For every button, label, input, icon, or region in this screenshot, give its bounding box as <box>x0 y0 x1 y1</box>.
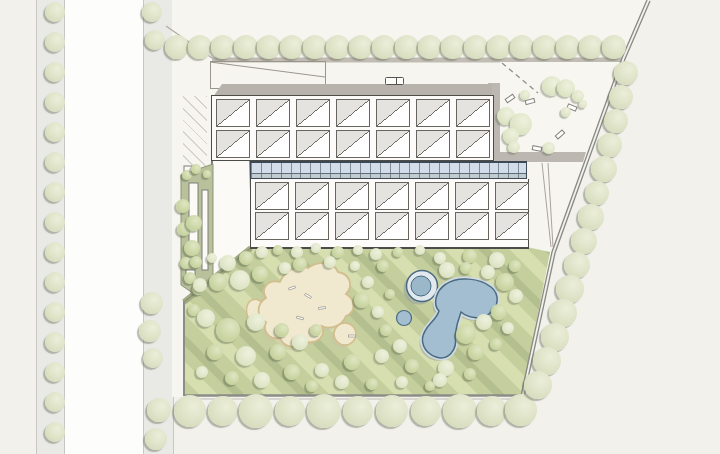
lawn-tree-icon <box>193 278 207 292</box>
tree-row-north-icon <box>372 35 396 59</box>
tree-row-north-icon <box>326 35 350 59</box>
lawn-tree-icon <box>509 289 523 303</box>
tree-row-east-boundary-icon <box>578 204 604 230</box>
lawn-tree-icon <box>306 380 318 392</box>
skylight-cell <box>295 182 329 210</box>
tree-row-east-boundary-icon <box>609 85 633 109</box>
skylight-cell <box>256 99 290 127</box>
skylight-cell <box>455 212 489 240</box>
glazing-row-upper <box>251 163 526 174</box>
pond-small-circle <box>397 311 412 326</box>
lawn-tree-icon <box>247 313 265 331</box>
lawn-tree-icon <box>273 245 283 255</box>
street-trees-inner-icon <box>143 348 163 368</box>
lawn-tree-icon <box>375 349 389 363</box>
skylight-cell <box>415 212 449 240</box>
skylight-block-north <box>211 95 494 161</box>
tree-row-north-icon <box>303 35 327 59</box>
lawn-tree-icon <box>275 323 289 337</box>
lawn-tree-icon <box>377 260 389 272</box>
skylight-cell <box>495 212 529 240</box>
skylight-cell <box>335 182 369 210</box>
tree-row-north-icon <box>395 35 419 59</box>
tree-row-north-icon <box>234 35 258 59</box>
lawn-tree-icon <box>433 373 447 387</box>
lawn-tree-icon <box>207 253 217 263</box>
skylight-cell <box>416 130 450 158</box>
courtyard-tree-icon <box>579 100 587 108</box>
skylight-cell <box>216 99 250 127</box>
lawn-tree-icon <box>344 354 360 370</box>
skylight-cell <box>295 212 329 240</box>
tree-row-east-boundary-icon <box>524 371 552 399</box>
tree-row-north-icon <box>533 35 557 59</box>
street-trees-inner-icon <box>142 2 162 22</box>
street-trees-outer-icon <box>45 152 65 172</box>
lawn-tree-icon <box>196 366 208 378</box>
skylight-cell <box>336 99 370 127</box>
tree-row-north-icon <box>211 35 235 59</box>
lawn-tree-icon <box>490 338 502 350</box>
street-trees-inner-icon <box>141 292 163 314</box>
lawn-tree-icon <box>464 368 476 380</box>
lawn-tree-icon <box>292 334 308 350</box>
courtyard-tree-icon <box>561 107 571 117</box>
lawn-tree-icon <box>197 309 215 327</box>
skylight-cell <box>256 130 290 158</box>
lawn-tree-icon <box>481 265 495 279</box>
lawn-tree-icon <box>252 266 268 282</box>
tree-row-north-icon <box>602 35 626 59</box>
lawn-tree-icon <box>324 256 336 268</box>
planting-strip-tree-icon <box>182 170 192 180</box>
skylight-cell <box>455 182 489 210</box>
skylight-cell <box>335 212 369 240</box>
street-trees-outer-icon <box>45 122 65 142</box>
tree-row-north-icon <box>188 35 212 59</box>
lawn-tree-icon <box>439 262 455 278</box>
skylight-cell <box>415 182 449 210</box>
street-trees-outer-icon <box>45 62 65 82</box>
lawn-tree-icon <box>310 324 322 336</box>
lawn-tree-icon <box>209 273 227 291</box>
courtyard-tree-icon <box>543 142 555 154</box>
tree-row-east-boundary-icon <box>571 228 597 254</box>
lawn-tree-icon <box>372 306 384 318</box>
lawn-tree-icon <box>354 292 370 308</box>
street-trees-outer-icon <box>45 2 65 22</box>
strip-slot <box>189 183 198 243</box>
tree-row-south-icon <box>239 394 273 428</box>
street-trees-inner-icon <box>145 30 165 50</box>
lawn-tree-icon <box>456 324 476 344</box>
tree-row-south-icon <box>443 394 477 428</box>
street-trees-outer-icon <box>45 182 65 202</box>
skylight-cell <box>296 99 330 127</box>
skylight-cell <box>456 99 490 127</box>
lawn-tree-icon <box>254 372 270 388</box>
tree-row-north-icon <box>165 35 189 59</box>
lawn-tree-icon <box>279 262 291 274</box>
skylight-cell <box>216 130 250 158</box>
lawn-tree-icon <box>468 344 484 360</box>
lawn-tree-icon <box>370 248 382 260</box>
tree-row-south-icon <box>343 396 373 426</box>
street-trees-outer-icon <box>45 212 65 232</box>
lawn-tree-icon <box>425 381 435 391</box>
lawn-tree-icon <box>366 378 378 390</box>
tree-row-east-boundary-icon <box>604 109 628 133</box>
skylight-cell <box>495 182 529 210</box>
lawn-tree-icon <box>335 375 349 389</box>
lawn-tree-icon <box>405 359 419 373</box>
tree-row-north-icon <box>487 35 511 59</box>
skylight-cell <box>456 130 490 158</box>
hatch-area <box>183 96 207 166</box>
glazing-row-lower <box>251 174 526 178</box>
glazed-atrium-band <box>250 161 527 179</box>
tree-row-south-icon <box>411 396 441 426</box>
tree-row-north-icon <box>441 35 465 59</box>
skylight-cell <box>375 182 409 210</box>
lawn-tree-icon <box>396 376 408 388</box>
tree-row-east-boundary-icon <box>585 181 609 205</box>
street-trees-outer-icon <box>45 362 65 382</box>
skylight-cell <box>296 130 330 158</box>
street-trees-outer-icon <box>45 92 65 112</box>
tree-row-east-boundary-icon <box>614 61 638 85</box>
planting-strip-tree-icon <box>176 199 190 213</box>
tree-row-north-icon <box>464 35 488 59</box>
courtyard-tree-icon <box>508 141 520 153</box>
tree-row-south-icon <box>208 396 238 426</box>
street-trees-outer-icon <box>45 392 65 412</box>
tree-row-south-icon <box>174 395 206 427</box>
street-trees-outer-icon <box>45 422 65 442</box>
site-plan-canvas <box>0 0 720 454</box>
street-trees-outer-icon <box>45 32 65 52</box>
lawn-tree-icon <box>353 245 363 255</box>
lawn-tree-icon <box>239 251 253 265</box>
tree-row-south-icon <box>275 396 305 426</box>
lawn-tree-icon <box>270 344 286 360</box>
skylight-cell <box>416 99 450 127</box>
lawn-tree-icon <box>491 304 507 320</box>
street-trees-outer-icon <box>45 302 65 322</box>
planting-strip-tree-icon <box>186 215 202 231</box>
street-trees-inner-icon <box>139 320 161 342</box>
lawn-tree-icon <box>385 289 395 299</box>
courtyard-tree-icon <box>520 90 530 100</box>
tree-row-north-icon <box>579 35 603 59</box>
tree-row-south-icon <box>307 394 341 428</box>
lawn-tree-icon <box>509 260 521 272</box>
street-trees-outer-icon <box>45 272 65 292</box>
skylight-cell <box>255 182 289 210</box>
skylight-cell <box>375 212 409 240</box>
street-trees-outer-icon <box>45 332 65 352</box>
street-trees-outer-icon <box>45 242 65 262</box>
lawn-tree-icon <box>460 262 472 274</box>
tree-row-north-icon <box>510 35 534 59</box>
lawn-tree-icon <box>362 276 374 288</box>
lawn-tree-icon <box>496 273 514 291</box>
lawn-tree-icon <box>463 249 477 263</box>
lawn-tree-icon <box>332 246 344 258</box>
skylight-cell <box>255 212 289 240</box>
skylight-cell <box>376 130 410 158</box>
lawn-tree-icon <box>230 270 250 290</box>
lawn-tree-icon <box>380 324 392 336</box>
tree-row-south-icon <box>477 396 507 426</box>
tree-row-north-icon <box>418 35 442 59</box>
lawn-tree-icon <box>415 245 425 255</box>
lawn-tree-icon <box>393 247 403 257</box>
street-trees-inner-icon <box>147 398 171 422</box>
tree-row-north-icon <box>349 35 373 59</box>
planting-strip-tree-icon <box>203 170 211 178</box>
lawn-tree-icon <box>207 344 223 360</box>
lawn-tree-icon <box>216 318 240 342</box>
roof-vent <box>385 77 404 85</box>
lawn-tree-icon <box>284 364 300 380</box>
planting-strip-tree-icon <box>184 240 200 256</box>
tree-row-south-icon <box>505 394 537 426</box>
lawn-tree-icon <box>315 363 329 377</box>
round-pool-inner <box>411 276 431 296</box>
tree-row-south-icon <box>376 395 408 427</box>
tree-row-north-icon <box>556 35 580 59</box>
planting-strip-tree-icon <box>191 164 201 174</box>
skylight-block-south <box>250 179 529 249</box>
lawn-tree-icon <box>190 256 202 268</box>
lawn-tree-icon <box>236 346 256 366</box>
lawn-tree-icon <box>225 371 239 385</box>
tree-row-east-boundary-icon <box>591 156 617 182</box>
lawn-tree-icon <box>293 257 307 271</box>
tree-row-east-boundary-icon <box>598 133 622 157</box>
tree-row-north-icon <box>280 35 304 59</box>
skylight-cell <box>376 99 410 127</box>
lawn-tree-icon <box>220 255 236 271</box>
lawn-tree-icon <box>350 261 360 271</box>
lawn-tree-icon <box>393 339 407 353</box>
sand-dash <box>349 335 356 337</box>
lawn-tree-icon <box>502 322 514 334</box>
tree-row-north-icon <box>257 35 281 59</box>
skylight-cell <box>336 130 370 158</box>
lawn-tree-icon <box>311 243 321 253</box>
street-trees-inner-icon <box>145 428 167 450</box>
lawn-tree-icon <box>256 246 268 258</box>
lawn-tree-icon <box>476 314 492 330</box>
